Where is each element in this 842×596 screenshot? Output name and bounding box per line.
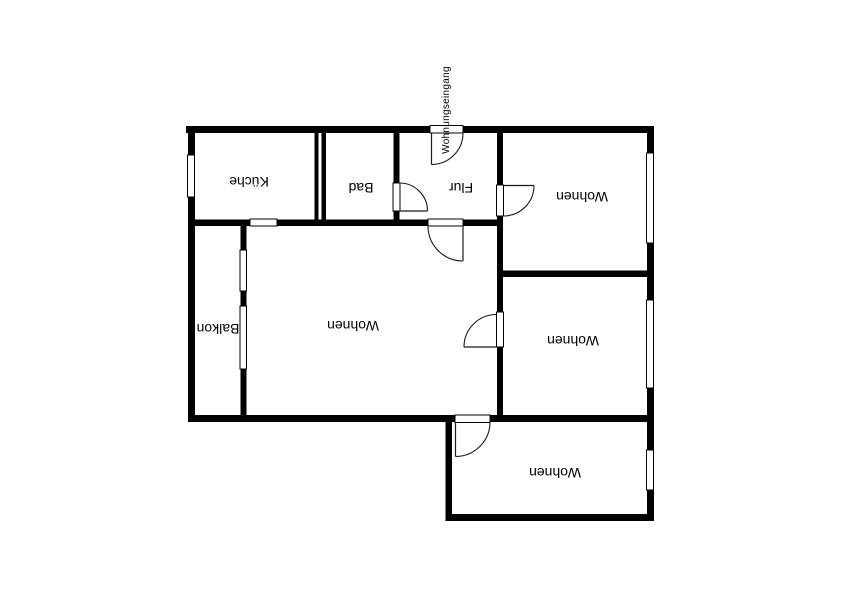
wall-outer-top bbox=[186, 126, 654, 133]
wall-kueche-row-b bbox=[277, 220, 428, 227]
door-arc-bad bbox=[400, 183, 428, 211]
wall-main-vertical-b bbox=[497, 216, 503, 312]
floorplan-drawing bbox=[0, 0, 842, 596]
window-wohnen-nordost bbox=[647, 153, 654, 243]
wall-kueche-row-a bbox=[188, 220, 250, 227]
wall-southroom-left bbox=[446, 420, 453, 521]
room-label-wohnen-ost: Wohnen bbox=[547, 334, 599, 348]
room-label-wohnen-nordost: Wohnen bbox=[556, 190, 608, 204]
door-arc-wohnen-nordost bbox=[504, 186, 535, 217]
window-wohnen-ost bbox=[647, 300, 654, 388]
threshold-wohnen-sued bbox=[455, 415, 490, 423]
room-label-bad: Bad bbox=[349, 181, 374, 195]
wall-bottom-east bbox=[490, 415, 654, 422]
room-label-wohnen-gross: Wohnen bbox=[327, 319, 379, 333]
window-balkon-upper bbox=[240, 250, 247, 291]
window-wohnen-sued bbox=[647, 450, 654, 490]
room-label-kueche: Küche bbox=[229, 175, 269, 189]
room-label-flur: Flur bbox=[449, 181, 473, 195]
threshold-wohnen-nordost bbox=[497, 185, 504, 216]
window-balkon-lower bbox=[240, 306, 247, 369]
door-arc-flur-wohnen bbox=[428, 226, 463, 261]
wall-balkon-c bbox=[241, 369, 247, 416]
wall-east-divider bbox=[503, 271, 647, 278]
wall-balkon-b bbox=[241, 291, 247, 306]
wall-kueche-bad-2 bbox=[322, 131, 327, 221]
wall-bad-flur-top bbox=[394, 131, 400, 183]
entrance-label: Wohnungseingang bbox=[442, 66, 452, 154]
threshold-bad bbox=[393, 183, 400, 211]
door-arc-wohnen-sued bbox=[456, 422, 491, 457]
door-arc-wohnen-ost bbox=[464, 315, 497, 348]
wall-bottom-west bbox=[188, 415, 455, 422]
wall-balkon-a bbox=[241, 226, 247, 250]
floorplan-canvas: Küche Bad Flur Wohnen Wohnen Wohnen Wohn… bbox=[0, 0, 842, 596]
wall-main-vertical-a bbox=[497, 126, 503, 185]
opening-kueche bbox=[250, 219, 277, 226]
wall-southroom-bottom bbox=[446, 514, 655, 521]
room-label-wohnen-sued: Wohnen bbox=[529, 466, 581, 480]
wall-bad-flur-bottom bbox=[394, 211, 400, 221]
threshold-wohnen-ost bbox=[497, 312, 504, 347]
door-thresholds bbox=[250, 126, 504, 423]
wall-kueche-bad-1 bbox=[315, 131, 319, 221]
wall-main-vertical-c bbox=[497, 347, 503, 422]
room-label-balkon: Balkon bbox=[197, 322, 240, 336]
threshold-flur-wohnen bbox=[428, 219, 463, 226]
window-kueche bbox=[188, 155, 195, 197]
